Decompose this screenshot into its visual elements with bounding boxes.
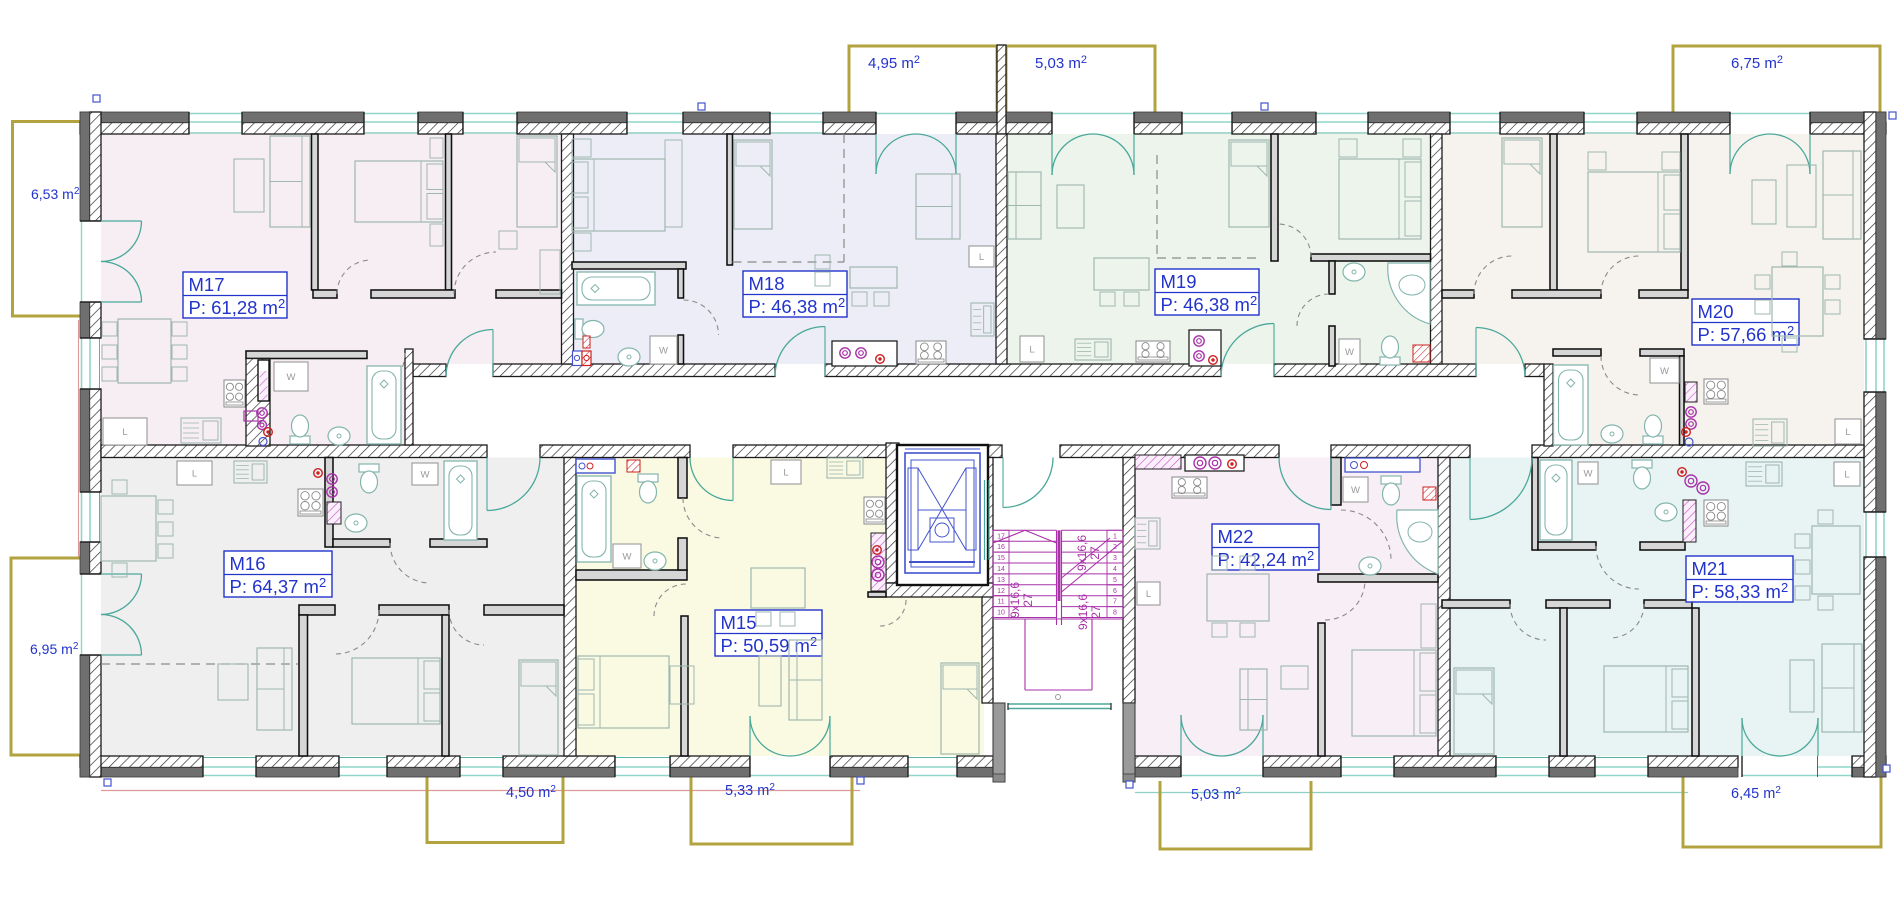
svg-text:4,95 m2: 4,95 m2: [868, 54, 920, 72]
svg-text:5,33 m2: 5,33 m2: [725, 782, 775, 799]
svg-text:27: 27: [1021, 593, 1035, 607]
svg-text:4,50 m2: 4,50 m2: [506, 784, 556, 801]
svg-text:W: W: [287, 372, 296, 383]
svg-text:L: L: [122, 427, 127, 438]
svg-text:10: 10: [997, 610, 1005, 617]
svg-text:P: 50,59 m2: P: 50,59 m2: [721, 634, 818, 656]
svg-text:W: W: [659, 346, 668, 357]
svg-text:M21: M21: [1692, 558, 1728, 579]
svg-text:16: 16: [997, 544, 1005, 551]
svg-text:L: L: [1845, 427, 1850, 438]
svg-text:P: 42,24 m2: P: 42,24 m2: [1218, 548, 1315, 570]
svg-text:9x16,6: 9x16,6: [1075, 535, 1089, 571]
svg-text:6: 6: [1113, 588, 1117, 595]
svg-text:P: 57,66 m2: P: 57,66 m2: [1698, 323, 1795, 345]
svg-text:W: W: [421, 470, 430, 481]
svg-text:14: 14: [997, 566, 1005, 573]
svg-text:6,75 m2: 6,75 m2: [1731, 54, 1783, 72]
svg-text:27: 27: [1088, 546, 1102, 560]
svg-text:9x16,6: 9x16,6: [1076, 594, 1090, 630]
svg-text:M19: M19: [1161, 271, 1197, 292]
svg-text:5: 5: [1113, 577, 1117, 584]
svg-text:M15: M15: [721, 612, 757, 633]
svg-text:M16: M16: [230, 553, 266, 574]
svg-text:W: W: [1584, 469, 1593, 480]
svg-text:P: 61,28 m2: P: 61,28 m2: [189, 296, 286, 318]
svg-text:L: L: [1029, 345, 1034, 356]
svg-text:27: 27: [1089, 605, 1103, 619]
svg-text:8: 8: [1113, 610, 1117, 617]
svg-text:P: 46,38 m2: P: 46,38 m2: [1161, 293, 1258, 315]
svg-text:W: W: [623, 552, 632, 563]
svg-text:L: L: [1146, 589, 1151, 600]
svg-text:5,03 m2: 5,03 m2: [1035, 54, 1087, 72]
svg-text:9x16,6: 9x16,6: [1008, 582, 1022, 618]
svg-text:M18: M18: [749, 273, 785, 294]
svg-text:3: 3: [1113, 555, 1117, 562]
svg-text:4: 4: [1113, 566, 1117, 573]
svg-text:6,53 m2: 6,53 m2: [31, 186, 80, 202]
svg-text:M22: M22: [1218, 526, 1254, 547]
svg-text:5,03 m2: 5,03 m2: [1191, 786, 1241, 803]
svg-text:12: 12: [997, 588, 1005, 595]
svg-text:15: 15: [997, 555, 1005, 562]
svg-text:M17: M17: [189, 274, 225, 295]
svg-text:11: 11: [997, 599, 1004, 606]
svg-text:13: 13: [997, 577, 1005, 584]
svg-text:M20: M20: [1698, 301, 1734, 322]
svg-text:L: L: [1844, 470, 1849, 481]
svg-text:6,45 m2: 6,45 m2: [1731, 785, 1781, 802]
svg-text:L: L: [979, 252, 984, 263]
svg-text:W: W: [1660, 366, 1669, 377]
svg-text:W: W: [1351, 485, 1360, 496]
svg-text:L: L: [783, 468, 788, 479]
svg-text:P: 58,33 m2: P: 58,33 m2: [1692, 580, 1789, 602]
svg-text:W: W: [1345, 347, 1354, 358]
svg-text:7: 7: [1113, 599, 1117, 606]
svg-text:L: L: [192, 469, 197, 480]
svg-text:1: 1: [1113, 533, 1117, 540]
svg-text:6,95 m2: 6,95 m2: [30, 641, 79, 657]
svg-text:P: 64,37 m2: P: 64,37 m2: [230, 575, 327, 597]
svg-text:P: 46,38 m2: P: 46,38 m2: [749, 295, 846, 317]
